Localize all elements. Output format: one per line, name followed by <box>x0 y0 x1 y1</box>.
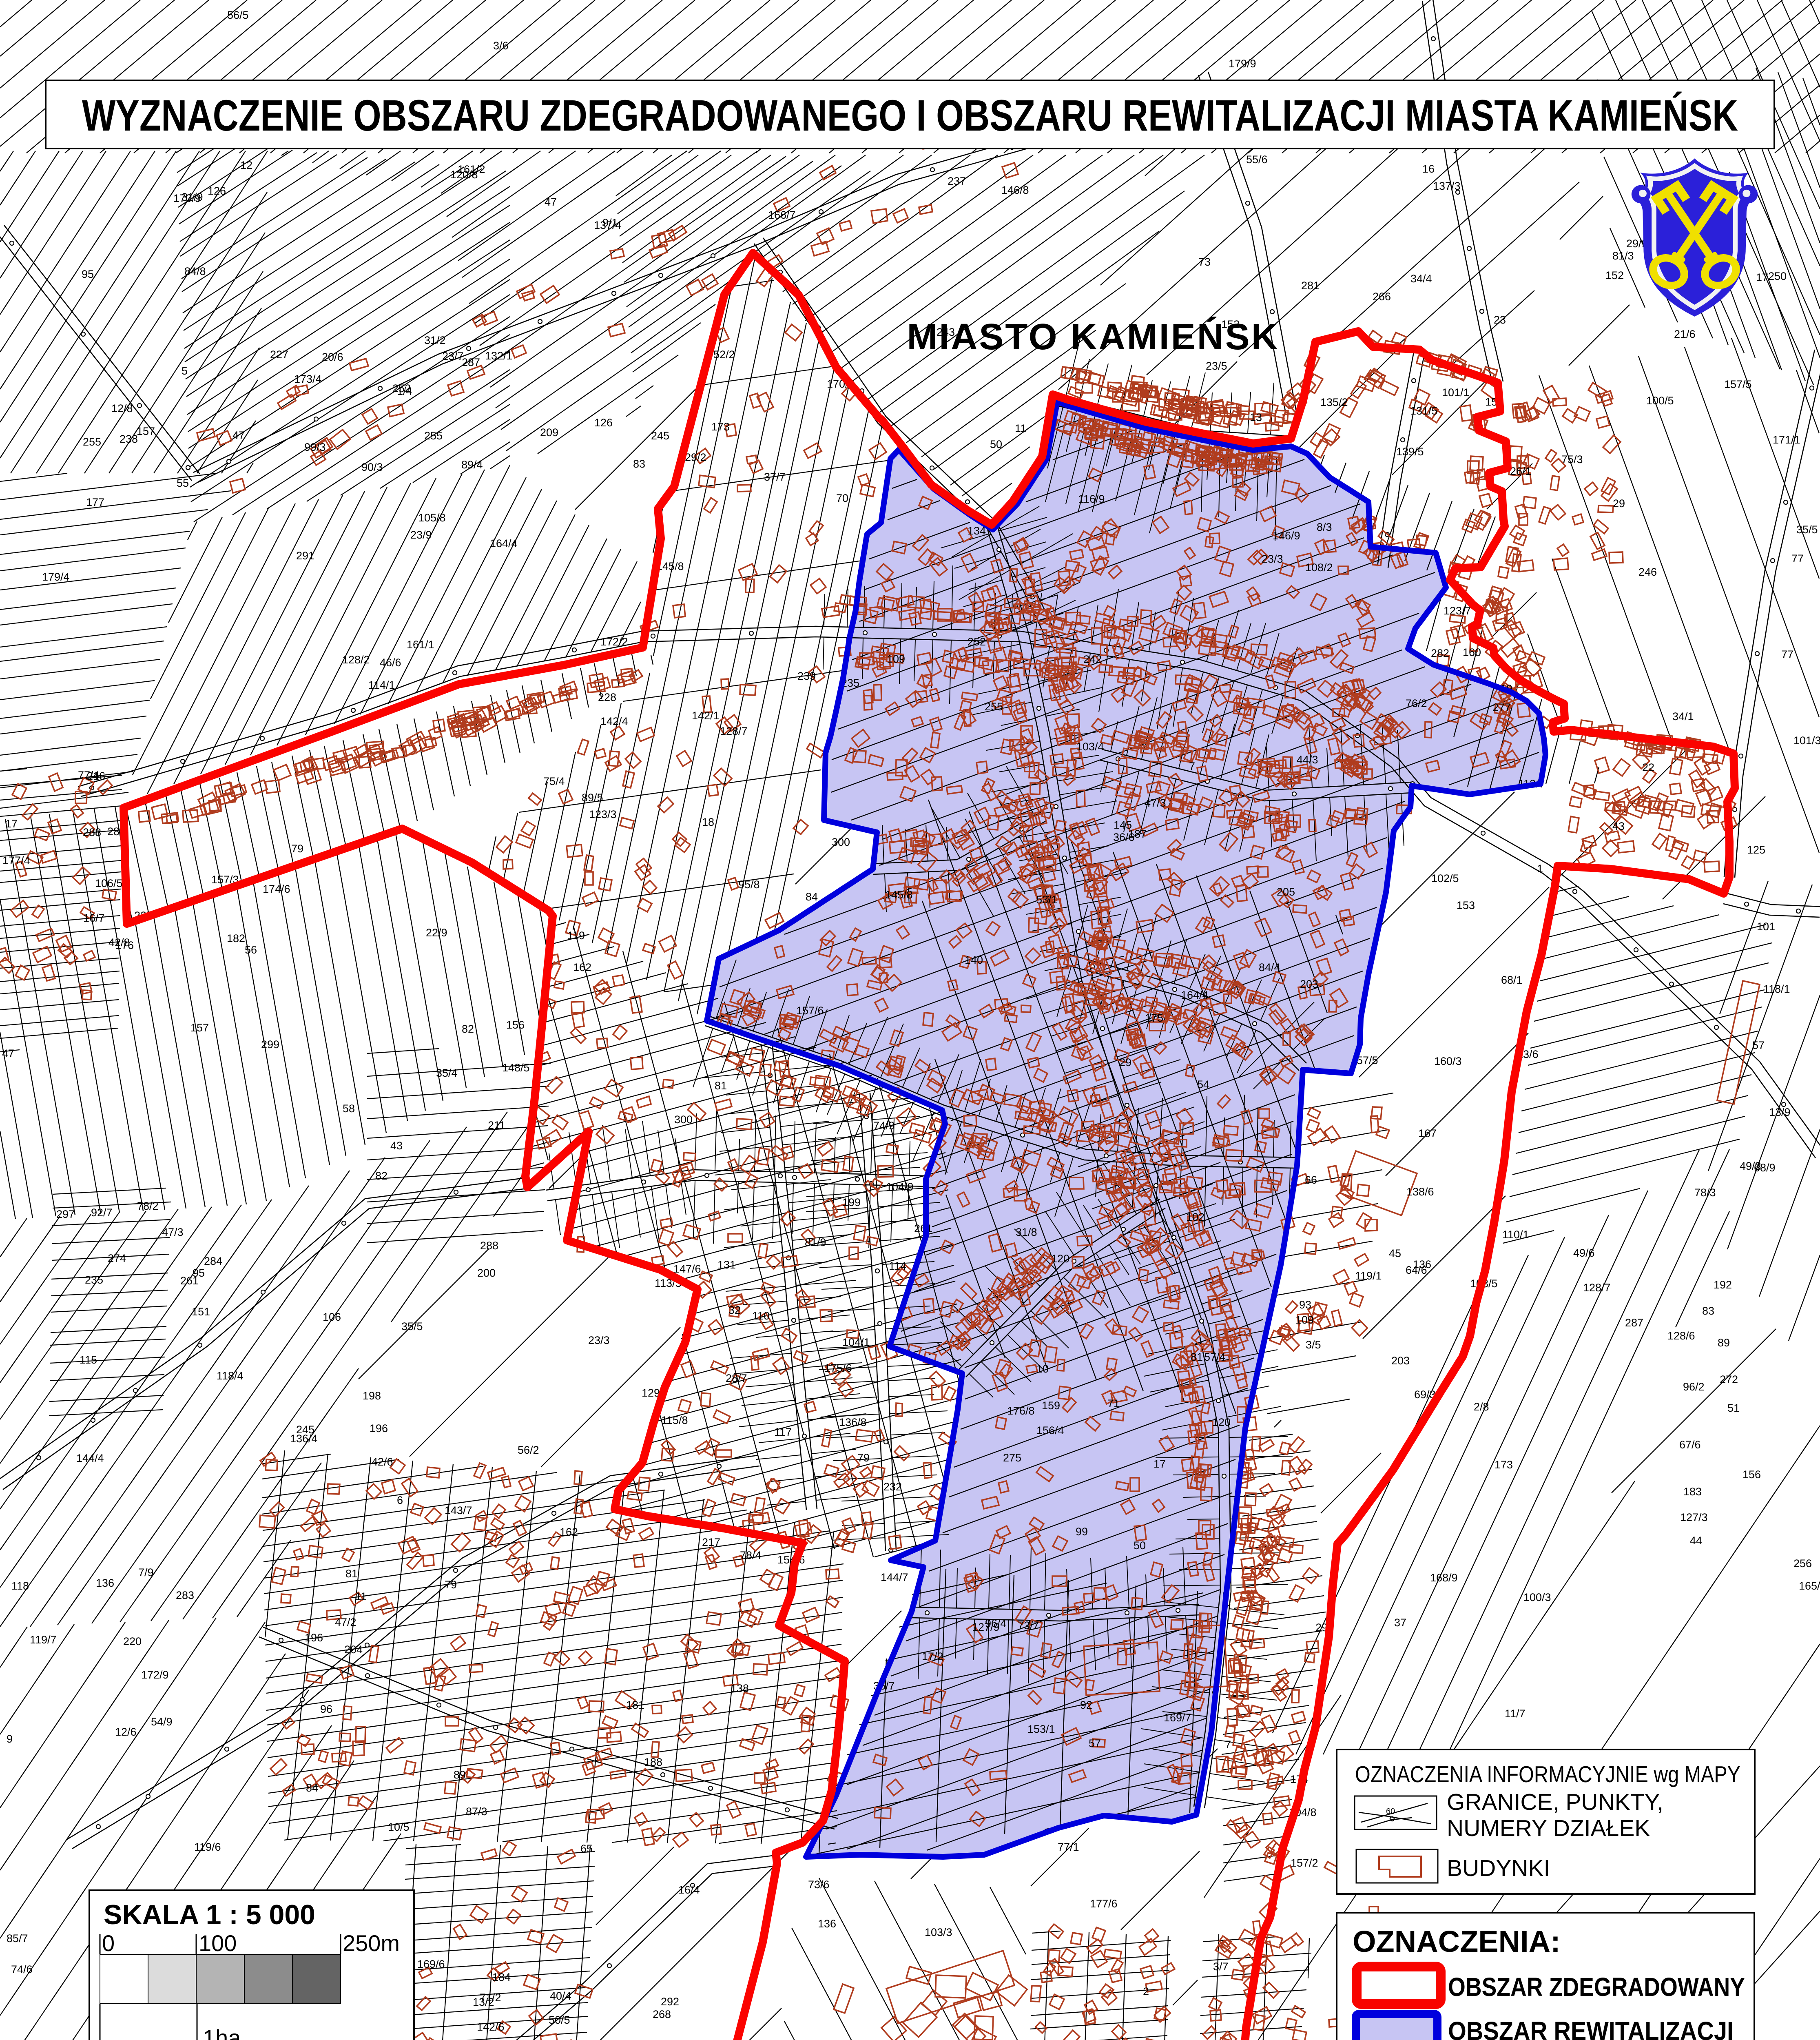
svg-text:184: 184 <box>492 1971 511 1983</box>
svg-text:192: 192 <box>1714 1279 1732 1291</box>
svg-text:73/7: 73/7 <box>1018 1619 1039 1632</box>
svg-text:0: 0 <box>102 1930 115 1956</box>
svg-text:101: 101 <box>1757 920 1775 933</box>
svg-text:146/9: 146/9 <box>1273 530 1300 542</box>
svg-text:75/3: 75/3 <box>1561 453 1583 466</box>
svg-text:275: 275 <box>1003 1452 1021 1464</box>
svg-text:37: 37 <box>1394 1616 1406 1629</box>
svg-text:169/7: 169/7 <box>1164 1712 1191 1724</box>
svg-text:89: 89 <box>1718 1337 1730 1349</box>
svg-text:246: 246 <box>1638 566 1657 578</box>
svg-text:203: 203 <box>1391 1355 1410 1367</box>
svg-text:44: 44 <box>1690 1534 1702 1547</box>
svg-text:211: 211 <box>488 1119 505 1131</box>
svg-text:6: 6 <box>397 1494 403 1506</box>
svg-text:162: 162 <box>573 961 591 973</box>
svg-text:151: 151 <box>192 1306 210 1318</box>
svg-text:96/4: 96/4 <box>985 1617 1007 1630</box>
svg-text:20/6: 20/6 <box>322 351 343 363</box>
svg-text:228: 228 <box>598 691 616 703</box>
svg-text:89/5: 89/5 <box>582 792 603 804</box>
svg-text:47/2: 47/2 <box>335 1616 356 1628</box>
svg-text:138/6: 138/6 <box>1406 1186 1434 1198</box>
svg-text:288: 288 <box>480 1240 498 1252</box>
svg-text:50: 50 <box>1134 1539 1146 1552</box>
svg-text:93: 93 <box>1299 1299 1311 1311</box>
svg-text:144/4: 144/4 <box>76 1452 104 1464</box>
svg-text:11: 11 <box>1015 422 1026 435</box>
svg-text:284: 284 <box>204 1255 222 1267</box>
svg-text:103/4: 103/4 <box>1076 741 1104 753</box>
svg-text:56: 56 <box>245 944 257 956</box>
svg-text:172/2: 172/2 <box>600 636 628 648</box>
svg-text:172/9: 172/9 <box>141 1669 169 1681</box>
svg-text:138: 138 <box>731 1682 749 1694</box>
svg-text:81: 81 <box>1191 1351 1203 1363</box>
svg-text:75/4: 75/4 <box>543 775 565 787</box>
svg-text:42/8: 42/8 <box>108 936 130 949</box>
svg-text:3/6: 3/6 <box>493 40 509 52</box>
svg-text:56/2: 56/2 <box>518 1444 539 1456</box>
svg-text:73/6: 73/6 <box>808 1878 830 1891</box>
svg-text:205: 205 <box>1277 886 1295 898</box>
svg-text:109: 109 <box>1295 1314 1314 1326</box>
svg-text:169/6: 169/6 <box>417 1958 445 1970</box>
svg-text:57: 57 <box>1752 1039 1765 1051</box>
svg-text:261: 261 <box>180 1275 199 1287</box>
svg-text:31/8: 31/8 <box>1016 1226 1037 1238</box>
svg-text:188: 188 <box>644 1756 662 1768</box>
svg-text:57: 57 <box>1089 1737 1101 1750</box>
svg-text:66: 66 <box>1305 1174 1317 1186</box>
svg-text:55: 55 <box>177 477 189 489</box>
svg-text:16/7: 16/7 <box>83 912 105 924</box>
svg-text:152: 152 <box>1605 269 1624 282</box>
svg-text:173/4: 173/4 <box>294 373 322 385</box>
svg-text:119: 119 <box>567 929 585 942</box>
svg-text:104/9: 104/9 <box>886 1181 914 1193</box>
svg-text:SKALA 1 : 5 000: SKALA 1 : 5 000 <box>104 1899 315 1930</box>
svg-text:OZNACZENIA INFORMACYJNIE wg MA: OZNACZENIA INFORMACYJNIE wg MAPY <box>1355 1761 1740 1787</box>
svg-text:83: 83 <box>633 458 645 470</box>
svg-text:144/7: 144/7 <box>881 1571 908 1583</box>
svg-text:164/4: 164/4 <box>1181 989 1209 1001</box>
svg-text:119/7: 119/7 <box>30 1634 57 1646</box>
svg-text:156/4: 156/4 <box>1036 1424 1064 1437</box>
svg-text:47/3: 47/3 <box>162 1226 184 1238</box>
svg-text:268: 268 <box>653 2008 671 2020</box>
svg-text:79: 79 <box>445 1579 457 1591</box>
svg-text:128/7: 128/7 <box>1583 1282 1611 1294</box>
svg-text:51: 51 <box>1727 1402 1740 1414</box>
svg-text:57/4: 57/4 <box>1204 1351 1226 1363</box>
svg-text:OBSZAR ZDEGRADOWANY: OBSZAR ZDEGRADOWANY <box>1448 1972 1745 2002</box>
svg-text:10: 10 <box>1036 1363 1049 1375</box>
svg-text:204: 204 <box>344 1643 363 1656</box>
svg-text:78/2: 78/2 <box>137 1200 159 1212</box>
svg-text:56/5: 56/5 <box>227 9 249 21</box>
svg-text:182: 182 <box>227 932 245 945</box>
svg-text:77: 77 <box>1791 552 1804 565</box>
svg-text:160/3: 160/3 <box>1434 1055 1462 1067</box>
svg-text:250m: 250m <box>343 1930 400 1956</box>
svg-text:252: 252 <box>968 636 986 648</box>
svg-text:47: 47 <box>2 1047 14 1060</box>
svg-text:85/7: 85/7 <box>7 1932 28 1945</box>
svg-text:77/4: 77/4 <box>78 769 100 781</box>
svg-text:196: 196 <box>305 1632 323 1644</box>
svg-text:2/8: 2/8 <box>1474 1401 1489 1413</box>
svg-text:104/1: 104/1 <box>842 1336 870 1348</box>
svg-text:288: 288 <box>83 826 101 838</box>
svg-text:17/2: 17/2 <box>922 1650 943 1663</box>
svg-text:287: 287 <box>462 356 480 368</box>
svg-text:50: 50 <box>990 438 1002 450</box>
svg-text:81/3: 81/3 <box>1612 250 1634 262</box>
svg-text:162: 162 <box>560 1526 578 1538</box>
svg-text:300: 300 <box>832 836 850 848</box>
svg-text:153: 153 <box>1457 899 1475 911</box>
svg-text:209: 209 <box>540 426 558 439</box>
svg-text:198: 198 <box>363 1390 381 1402</box>
svg-text:156: 156 <box>506 1019 525 1031</box>
svg-text:147/6: 147/6 <box>673 1263 701 1275</box>
svg-text:1ha: 1ha <box>203 2025 241 2040</box>
svg-text:13/9: 13/9 <box>1769 1106 1791 1118</box>
svg-text:36/6: 36/6 <box>1113 831 1135 843</box>
svg-text:47: 47 <box>545 196 557 208</box>
svg-text:110/1: 110/1 <box>1502 1228 1529 1241</box>
svg-text:BUDYNKI: BUDYNKI <box>1447 1855 1550 1881</box>
svg-text:87/3: 87/3 <box>466 1805 487 1818</box>
svg-text:10/5: 10/5 <box>388 1821 410 1833</box>
svg-text:116/9: 116/9 <box>1078 493 1105 505</box>
svg-text:281: 281 <box>1301 279 1320 292</box>
svg-text:291: 291 <box>296 550 314 562</box>
svg-text:1/4: 1/4 <box>397 385 412 397</box>
svg-text:129: 129 <box>642 1387 660 1399</box>
svg-text:177/6: 177/6 <box>1090 1898 1118 1910</box>
svg-text:102: 102 <box>1186 1211 1204 1223</box>
svg-text:183: 183 <box>1683 1486 1702 1498</box>
svg-text:96/2: 96/2 <box>1683 1381 1705 1393</box>
svg-text:110: 110 <box>752 1310 770 1322</box>
svg-text:54/9: 54/9 <box>151 1716 173 1728</box>
svg-text:44/3: 44/3 <box>1297 754 1318 766</box>
svg-text:77/1: 77/1 <box>1058 1841 1079 1853</box>
svg-text:82: 82 <box>375 1170 387 1182</box>
svg-text:84: 84 <box>306 1782 318 1794</box>
svg-text:3/5: 3/5 <box>1306 1339 1321 1351</box>
svg-text:165/9: 165/9 <box>1799 1580 1820 1592</box>
svg-text:203: 203 <box>1300 978 1318 990</box>
svg-text:237: 237 <box>948 175 966 187</box>
svg-text:174/6: 174/6 <box>263 883 290 895</box>
svg-text:145/8: 145/8 <box>885 889 913 901</box>
svg-text:118: 118 <box>11 1580 29 1592</box>
svg-text:7: 7 <box>1189 760 1195 772</box>
svg-text:255: 255 <box>985 701 1003 713</box>
svg-text:35/4: 35/4 <box>436 1067 458 1079</box>
svg-text:OBSZAR REWITALIZACJI: OBSZAR REWITALIZACJI <box>1448 2016 1734 2040</box>
svg-text:167: 167 <box>1418 1127 1437 1140</box>
svg-text:58: 58 <box>343 1102 355 1115</box>
svg-text:166/7: 166/7 <box>768 209 796 221</box>
svg-text:3/7: 3/7 <box>1213 1960 1229 1973</box>
svg-text:153/1: 153/1 <box>1027 1723 1055 1735</box>
svg-text:35/5: 35/5 <box>401 1320 423 1333</box>
svg-text:238: 238 <box>120 433 138 445</box>
svg-text:250: 250 <box>1768 270 1787 282</box>
svg-text:84: 84 <box>806 891 818 903</box>
svg-text:142/1: 142/1 <box>692 710 720 722</box>
svg-text:139/5: 139/5 <box>1396 446 1424 458</box>
svg-text:118/1: 118/1 <box>1763 983 1790 995</box>
svg-text:92: 92 <box>1080 1699 1092 1711</box>
svg-text:128/6: 128/6 <box>1667 1330 1695 1342</box>
svg-text:100: 100 <box>199 1930 237 1956</box>
svg-text:266: 266 <box>1373 290 1391 303</box>
svg-text:55/6: 55/6 <box>1246 153 1268 166</box>
svg-text:157/5: 157/5 <box>1724 378 1752 390</box>
svg-text:128/7: 128/7 <box>720 725 748 737</box>
svg-text:32: 32 <box>728 1304 741 1316</box>
svg-text:123/7: 123/7 <box>1444 605 1471 617</box>
svg-text:200: 200 <box>477 1267 496 1279</box>
svg-text:79: 79 <box>291 843 303 855</box>
svg-text:78/3: 78/3 <box>1694 1186 1716 1199</box>
svg-text:47/3: 47/3 <box>1145 797 1166 809</box>
svg-text:157/2: 157/2 <box>1291 1857 1318 1869</box>
svg-text:159: 159 <box>1042 1399 1060 1412</box>
svg-text:176/8: 176/8 <box>1007 1405 1035 1417</box>
svg-text:OZNACZENIA:: OZNACZENIA: <box>1353 1925 1561 1958</box>
svg-text:2: 2 <box>1143 1985 1149 1998</box>
svg-text:29: 29 <box>1613 497 1625 510</box>
svg-text:83: 83 <box>1702 1305 1714 1317</box>
svg-text:181: 181 <box>626 1699 644 1711</box>
svg-text:119/1: 119/1 <box>1355 1270 1382 1282</box>
svg-text:12/6: 12/6 <box>115 1726 137 1738</box>
svg-text:227: 227 <box>270 348 288 361</box>
svg-text:79: 79 <box>857 1452 870 1464</box>
svg-text:117: 117 <box>774 1426 792 1438</box>
svg-text:164/4: 164/4 <box>490 537 518 550</box>
svg-text:131: 131 <box>717 1259 736 1271</box>
svg-text:49/6: 49/6 <box>1573 1247 1595 1259</box>
svg-text:35/5: 35/5 <box>1796 523 1818 536</box>
svg-text:282: 282 <box>1431 647 1449 659</box>
svg-text:52/2: 52/2 <box>713 348 735 361</box>
svg-text:16/4: 16/4 <box>678 1884 700 1896</box>
svg-text:64/6: 64/6 <box>1406 1264 1427 1276</box>
svg-text:118/4: 118/4 <box>217 1370 244 1382</box>
svg-text:71: 71 <box>1107 1397 1120 1410</box>
svg-text:95: 95 <box>82 268 94 280</box>
svg-text:232: 232 <box>883 1481 902 1493</box>
svg-text:102/5: 102/5 <box>1431 872 1459 885</box>
svg-text:46/6: 46/6 <box>380 656 401 669</box>
svg-text:70: 70 <box>836 492 848 504</box>
svg-text:127/3: 127/3 <box>1680 1511 1708 1523</box>
svg-text:220: 220 <box>123 1635 142 1648</box>
svg-text:177: 177 <box>86 496 104 508</box>
svg-text:13/2: 13/2 <box>473 1996 494 2008</box>
svg-text:126: 126 <box>594 417 613 429</box>
svg-text:255: 255 <box>83 436 101 448</box>
svg-text:148/5: 148/5 <box>502 1062 530 1074</box>
svg-text:MIASTO KAMIEŃSK: MIASTO KAMIEŃSK <box>907 316 1279 357</box>
svg-text:74/9: 74/9 <box>873 1120 895 1132</box>
svg-text:108/2: 108/2 <box>1305 561 1333 574</box>
svg-text:131/5: 131/5 <box>1410 405 1438 417</box>
svg-text:31/2: 31/2 <box>424 334 446 346</box>
svg-text:23/9: 23/9 <box>410 529 432 541</box>
svg-text:120: 120 <box>1212 1416 1231 1428</box>
svg-text:101/1: 101/1 <box>1442 386 1470 399</box>
svg-text:99/3: 99/3 <box>304 441 326 453</box>
svg-text:287: 287 <box>1625 1317 1643 1329</box>
svg-text:7: 7 <box>1225 1738 1231 1751</box>
svg-text:84/4: 84/4 <box>1259 961 1280 973</box>
svg-text:WYZNACZENIE OBSZARU ZDEGRADOWA: WYZNACZENIE OBSZARU ZDEGRADOWANEGO I OBS… <box>82 91 1738 140</box>
svg-text:272: 272 <box>1720 1373 1738 1386</box>
svg-text:137/4: 137/4 <box>594 219 622 231</box>
svg-text:23/5: 23/5 <box>1206 360 1227 372</box>
svg-text:99: 99 <box>1076 1526 1088 1538</box>
svg-text:115: 115 <box>80 1354 97 1366</box>
svg-text:100/3: 100/3 <box>1523 1591 1551 1603</box>
svg-text:125: 125 <box>1747 844 1765 856</box>
svg-text:26/1: 26/1 <box>1510 465 1532 477</box>
svg-text:53/1: 53/1 <box>1036 894 1058 906</box>
svg-text:177/4: 177/4 <box>2 854 30 867</box>
svg-text:50/5: 50/5 <box>549 2014 570 2026</box>
svg-text:132/1: 132/1 <box>485 350 513 362</box>
svg-text:106/5: 106/5 <box>95 877 123 889</box>
svg-text:12/8: 12/8 <box>111 402 133 415</box>
svg-text:135/2: 135/2 <box>1320 396 1348 408</box>
svg-text:157: 157 <box>190 1022 209 1034</box>
svg-text:84/8: 84/8 <box>184 265 206 277</box>
svg-text:245: 245 <box>296 1424 314 1436</box>
svg-text:157/6: 157/6 <box>796 1004 824 1017</box>
svg-text:21/6: 21/6 <box>1674 328 1696 340</box>
svg-text:89/4: 89/4 <box>461 459 483 471</box>
svg-text:120: 120 <box>1051 1253 1069 1265</box>
svg-text:160: 160 <box>1463 646 1481 659</box>
svg-text:45: 45 <box>1389 1247 1401 1259</box>
svg-text:54: 54 <box>1197 1078 1209 1091</box>
svg-text:199: 199 <box>842 1196 861 1208</box>
svg-text:28/7: 28/7 <box>726 1372 747 1384</box>
svg-text:7/9: 7/9 <box>138 1566 154 1579</box>
svg-text:95/8: 95/8 <box>738 878 760 891</box>
svg-text:5: 5 <box>182 365 188 377</box>
svg-text:82: 82 <box>462 1023 474 1035</box>
svg-text:78/4: 78/4 <box>740 1549 762 1561</box>
svg-text:42/6: 42/6 <box>372 1456 393 1468</box>
svg-text:179/4: 179/4 <box>42 571 70 583</box>
svg-text:68/9: 68/9 <box>1754 1162 1776 1174</box>
svg-text:76/2: 76/2 <box>1406 697 1427 710</box>
svg-text:140: 140 <box>965 954 983 966</box>
svg-text:283: 283 <box>176 1589 194 1601</box>
svg-text:179/9: 179/9 <box>1229 58 1256 70</box>
svg-text:136/8: 136/8 <box>839 1416 867 1428</box>
svg-text:239: 239 <box>797 670 816 682</box>
svg-text:255: 255 <box>424 430 443 442</box>
svg-text:173: 173 <box>711 421 730 433</box>
svg-text:297: 297 <box>56 1208 75 1220</box>
svg-text:90/3: 90/3 <box>361 461 383 473</box>
svg-text:175: 175 <box>1145 1012 1163 1024</box>
svg-text:256: 256 <box>1793 1557 1812 1570</box>
svg-text:34/4: 34/4 <box>1410 273 1432 285</box>
svg-text:126: 126 <box>208 185 226 197</box>
svg-text:16: 16 <box>1422 163 1435 175</box>
svg-text:105/8: 105/8 <box>418 512 446 524</box>
svg-text:18: 18 <box>702 816 714 828</box>
svg-text:146/8: 146/8 <box>1001 184 1029 196</box>
svg-text:161/1: 161/1 <box>407 639 434 651</box>
svg-text:245: 245 <box>651 430 669 442</box>
svg-text:37/7: 37/7 <box>764 471 786 483</box>
svg-text:47: 47 <box>232 429 245 441</box>
svg-text:43: 43 <box>390 1140 403 1152</box>
svg-text:106: 106 <box>323 1311 341 1323</box>
svg-text:173: 173 <box>1495 1459 1513 1471</box>
svg-text:17: 17 <box>1154 1458 1166 1470</box>
svg-text:8/3: 8/3 <box>1317 521 1332 533</box>
svg-text:57/5: 57/5 <box>1357 1054 1378 1067</box>
svg-text:128/2: 128/2 <box>342 654 370 666</box>
svg-text:GRANICE, PUNKTY,: GRANICE, PUNKTY, <box>1447 1789 1663 1815</box>
svg-text:89: 89 <box>454 1769 466 1781</box>
svg-text:29: 29 <box>1119 1056 1131 1069</box>
svg-text:73: 73 <box>1198 256 1211 268</box>
svg-text:22: 22 <box>1642 761 1654 774</box>
svg-text:NUMERY DZIAŁEK: NUMERY DZIAŁEK <box>1447 1815 1650 1841</box>
svg-text:60: 60 <box>1386 1807 1395 1816</box>
svg-text:114/1: 114/1 <box>368 679 395 691</box>
svg-text:101/3: 101/3 <box>1793 734 1820 747</box>
svg-text:22/9: 22/9 <box>426 927 447 939</box>
svg-text:17: 17 <box>1756 271 1768 284</box>
svg-text:170/9: 170/9 <box>173 192 201 204</box>
svg-text:74/6: 74/6 <box>11 1963 33 1976</box>
svg-text:68/1: 68/1 <box>1501 974 1523 986</box>
svg-text:217: 217 <box>702 1536 720 1548</box>
svg-text:67/6: 67/6 <box>1679 1439 1701 1451</box>
svg-text:11: 11 <box>355 1590 367 1603</box>
svg-text:242: 242 <box>1083 653 1102 665</box>
svg-text:300: 300 <box>674 1113 693 1126</box>
svg-text:120/8: 120/8 <box>450 169 478 181</box>
svg-text:136: 136 <box>818 1918 836 1930</box>
svg-text:92/7: 92/7 <box>91 1206 113 1219</box>
svg-text:40/4: 40/4 <box>550 1990 571 2002</box>
svg-text:196: 196 <box>370 1422 388 1435</box>
svg-text:115/8: 115/8 <box>661 1414 688 1426</box>
svg-text:157: 157 <box>137 425 155 437</box>
svg-text:81/9: 81/9 <box>805 1236 826 1248</box>
svg-text:77: 77 <box>1781 648 1793 661</box>
svg-text:109: 109 <box>887 653 905 665</box>
svg-text:156: 156 <box>1743 1468 1761 1481</box>
svg-text:96: 96 <box>320 1703 332 1715</box>
svg-text:143/7: 143/7 <box>445 1504 472 1517</box>
